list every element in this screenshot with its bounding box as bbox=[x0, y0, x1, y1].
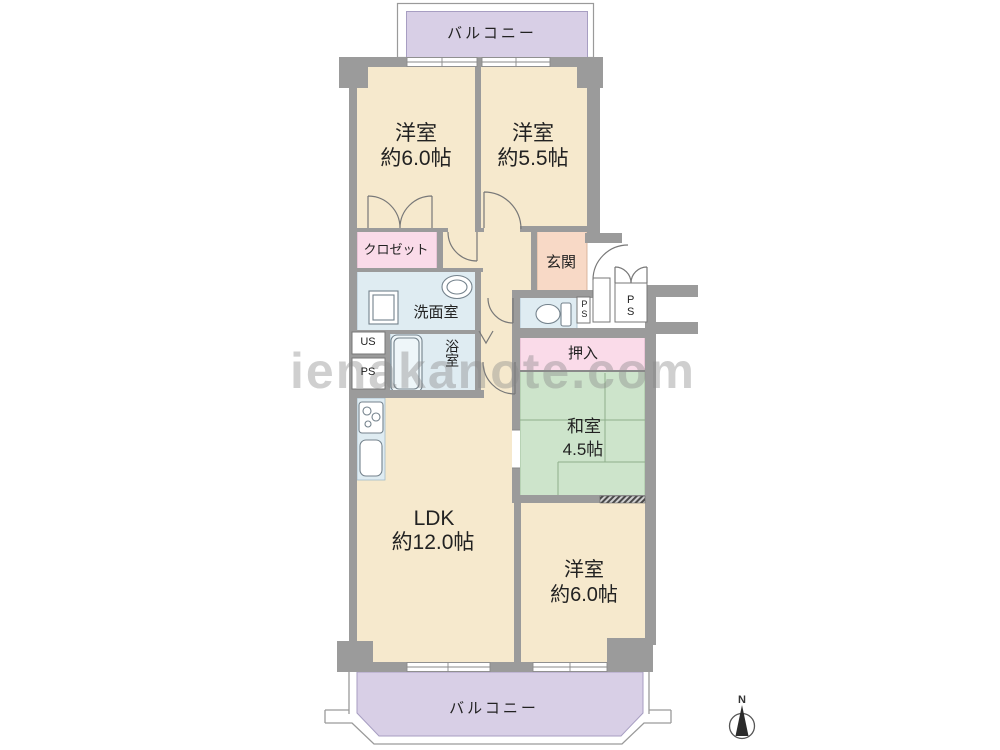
stove-icon bbox=[359, 402, 383, 433]
wall-under-bedroom1b bbox=[475, 228, 484, 232]
wall-corner-tl bbox=[339, 57, 368, 88]
entry-niche-box bbox=[593, 278, 610, 322]
window-top-right bbox=[482, 58, 550, 67]
bedroom-top-left-name: 洋室 bbox=[395, 122, 437, 146]
sink-icon bbox=[442, 276, 472, 299]
ldk-size: 約12.0帖 bbox=[392, 531, 475, 555]
japanese-room-size: 4.5帖 bbox=[563, 440, 604, 460]
oshiire-label: 押入 bbox=[568, 345, 598, 362]
wall-ldk-bedroom bbox=[514, 500, 521, 664]
wall-right-lower bbox=[645, 285, 656, 645]
us-label: US bbox=[360, 336, 375, 349]
window-top-left bbox=[407, 58, 477, 67]
wall-stub-lower bbox=[645, 322, 698, 334]
compass-north-label: N bbox=[738, 694, 746, 707]
ps-entry-label: PS bbox=[624, 294, 637, 318]
japanese-room-name: 和室 bbox=[567, 417, 601, 437]
wall-corner-tr bbox=[577, 57, 603, 88]
window-bottom-left bbox=[407, 663, 490, 672]
bedroom-top-right-size: 約5.5帖 bbox=[497, 147, 568, 171]
balcony-top-label: バルコニー bbox=[447, 25, 537, 42]
wall-bedroom-divider bbox=[475, 67, 481, 232]
bedroom-bottom-size: 約6.0帖 bbox=[550, 584, 618, 607]
bedroom-bottom-name: 洋室 bbox=[564, 559, 604, 582]
balcony-bottom-label: バルコニー bbox=[449, 700, 539, 717]
wall-closet-bottom bbox=[353, 268, 483, 272]
wall-toilet-bottom bbox=[513, 328, 656, 338]
meterbox-door-arc bbox=[615, 267, 647, 283]
kitchen-sink-icon bbox=[360, 440, 382, 476]
wall-hall-entrance bbox=[531, 232, 537, 295]
ldk-name: LDK bbox=[414, 507, 455, 531]
wall-entrance-top bbox=[520, 226, 587, 232]
wall-closet-right bbox=[437, 228, 443, 272]
threshold-hatch bbox=[600, 496, 645, 503]
wall-stub-upper bbox=[645, 285, 698, 297]
wall-right-upper bbox=[587, 88, 600, 233]
ps-left-label: PS bbox=[361, 366, 376, 379]
wall-entry-outer bbox=[585, 233, 622, 243]
window-bottom-right bbox=[533, 663, 607, 672]
washroom-label: 洗面室 bbox=[413, 304, 458, 321]
wall-under-bedroom1a bbox=[357, 228, 448, 232]
closet-label: クロゼット bbox=[363, 243, 428, 258]
bedroom-top-left-size: 約6.0帖 bbox=[380, 147, 451, 171]
washing-machine-icon bbox=[369, 291, 398, 324]
entry-door-arc bbox=[593, 245, 628, 280]
bedroom-top-right-name: 洋室 bbox=[512, 122, 554, 146]
compass-icon bbox=[730, 705, 755, 739]
ps-small-label: PS bbox=[579, 299, 589, 319]
bathroom-label: 浴室 bbox=[444, 339, 460, 367]
watermark-text: ienakanote.com bbox=[290, 342, 696, 400]
floorplan-canvas: ienakanote.com バルコニー 洋室 約6.0帖 洋室 約5.5帖 ク… bbox=[0, 0, 1000, 750]
entrance-label: 玄関 bbox=[546, 254, 576, 271]
opening-ldk-washitsu bbox=[512, 430, 520, 468]
